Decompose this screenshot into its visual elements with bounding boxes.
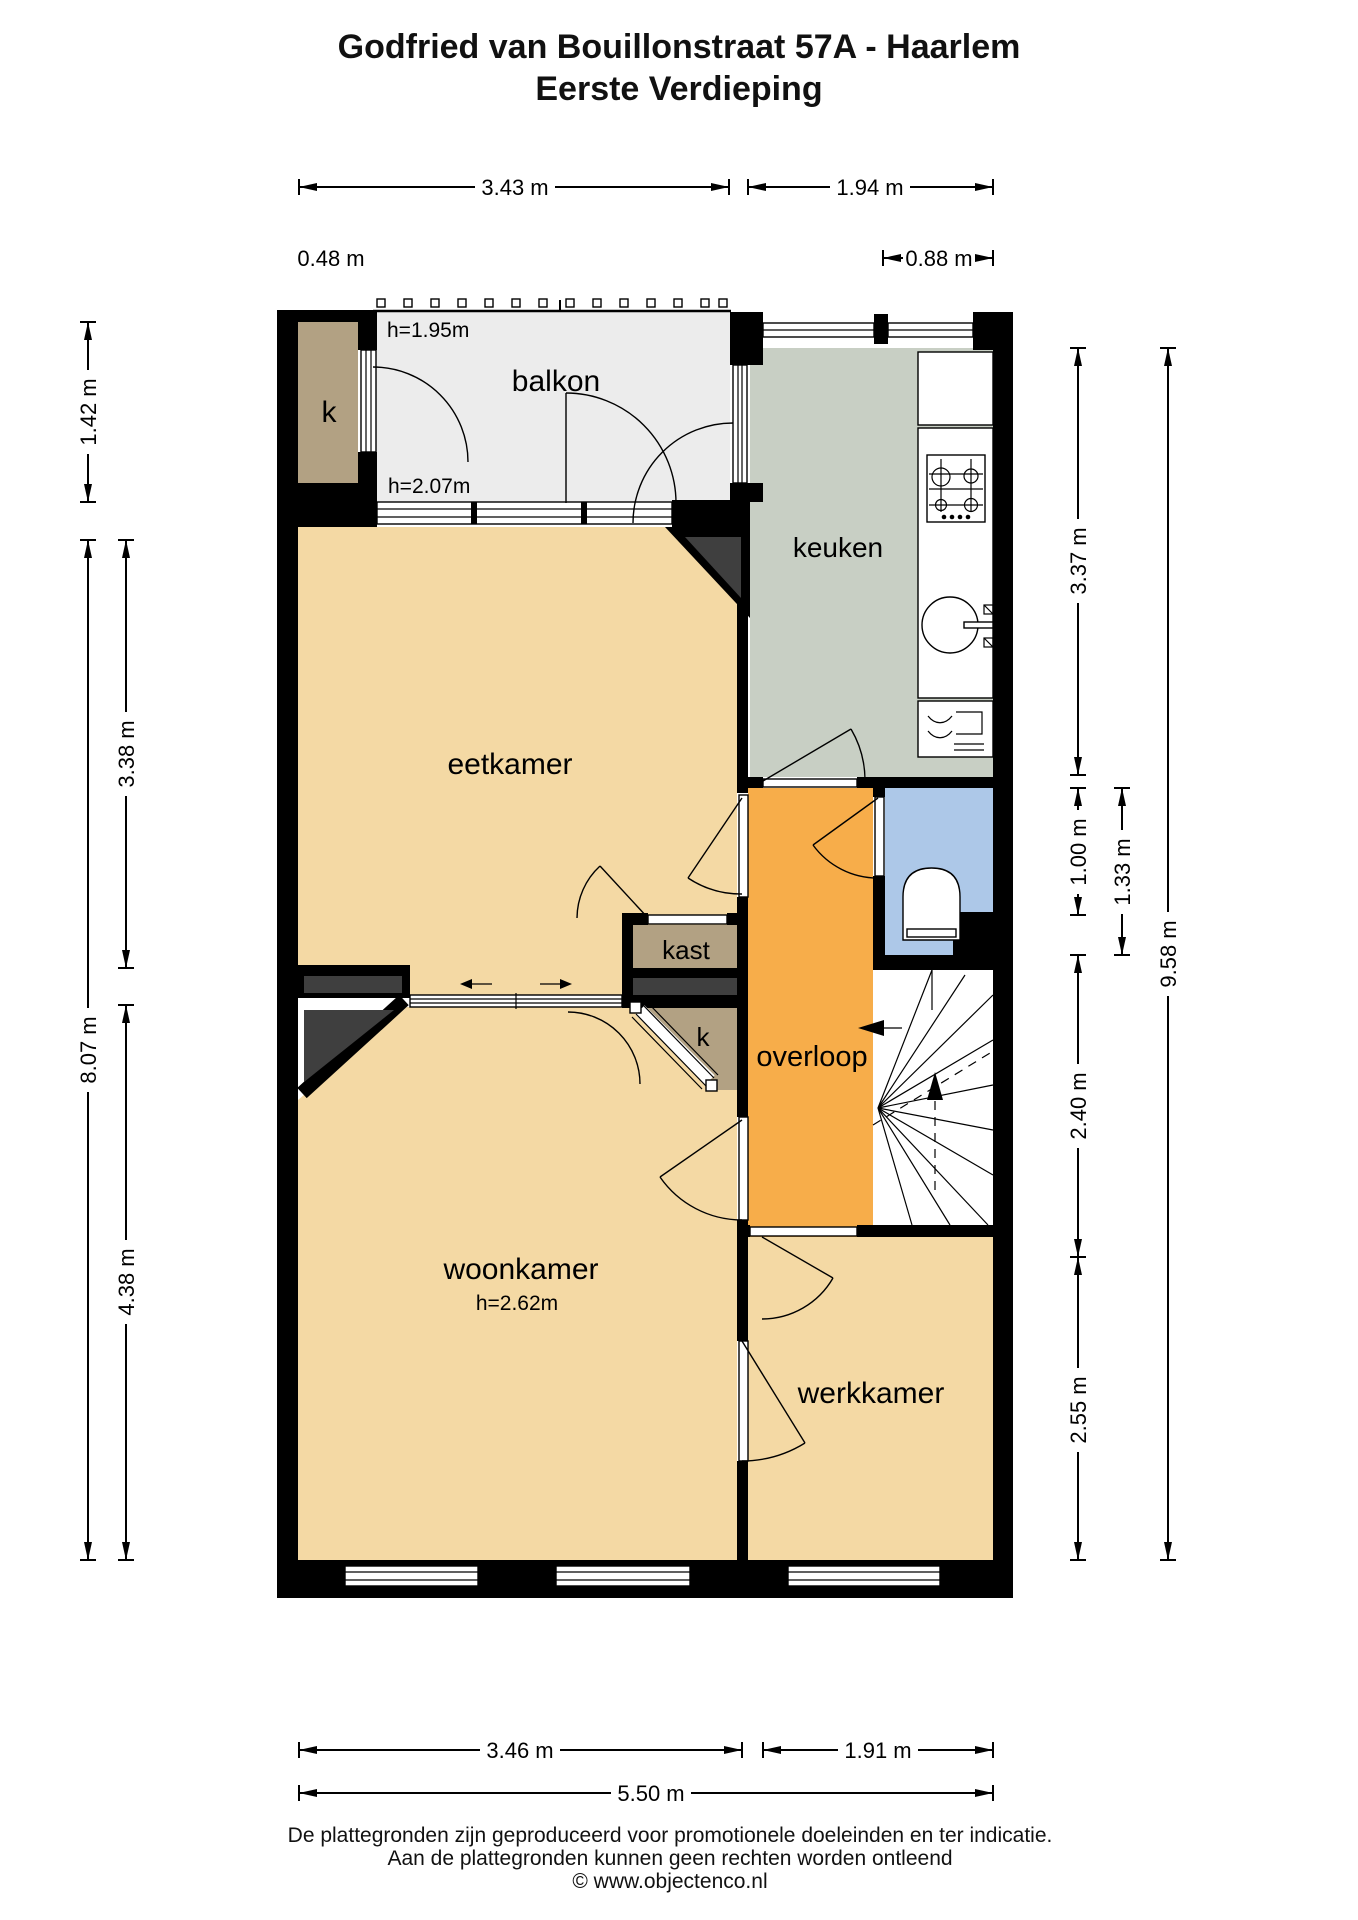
dim-left-total: 8.07 m bbox=[74, 540, 102, 1560]
footer-line-2: Aan de plattegronden kunnen geen rechten… bbox=[0, 1847, 1340, 1870]
werkkamer-label: werkkamer bbox=[797, 1377, 945, 1410]
svg-text:4.38 m: 4.38 m bbox=[114, 1248, 139, 1315]
svg-text:1.91 m: 1.91 m bbox=[844, 1738, 911, 1763]
balcony-railing bbox=[373, 299, 731, 311]
footer-line-3: © www.objectenco.nl bbox=[0, 1870, 1340, 1893]
dim-top-keuken: 1.94 m bbox=[748, 173, 993, 201]
svg-text:0.88 m: 0.88 m bbox=[905, 246, 972, 271]
eetkamer-label: eetkamer bbox=[447, 748, 572, 781]
svg-text:3.38 m: 3.38 m bbox=[114, 720, 139, 787]
floor-plan: balkon h=1.95m h=2.07m k keuken eetkamer… bbox=[0, 0, 1358, 1920]
svg-text:2.40 m: 2.40 m bbox=[1066, 1072, 1091, 1139]
balkon-height-bottom: h=2.07m bbox=[388, 475, 470, 498]
svg-text:5.50 m: 5.50 m bbox=[617, 1781, 684, 1806]
svg-text:3.46 m: 3.46 m bbox=[486, 1738, 553, 1763]
footer-disclaimer: De plattegronden zijn geproduceerd voor … bbox=[0, 1824, 1340, 1893]
dim-bottom-woonkamer: 3.46 m bbox=[299, 1736, 742, 1764]
svg-text:9.58 m: 9.58 m bbox=[1156, 920, 1181, 987]
dim-left-closet: 1.42 m bbox=[74, 322, 102, 502]
dim-right-total: 9.58 m bbox=[1154, 348, 1182, 1560]
dim-top-closet: 0.48 m bbox=[297, 246, 364, 271]
svg-text:3.43 m: 3.43 m bbox=[481, 175, 548, 200]
dim-right-overloop: 2.40 m bbox=[1064, 955, 1092, 1257]
svg-text:2.55 m: 2.55 m bbox=[1066, 1376, 1091, 1443]
dim-bottom-total: 5.50 m bbox=[299, 1779, 993, 1807]
kitchen-counter bbox=[918, 352, 993, 757]
dim-right-werkkamer: 2.55 m bbox=[1064, 1257, 1092, 1560]
stove-icon bbox=[927, 455, 985, 522]
dim-bottom-werkkamer: 1.91 m bbox=[763, 1736, 993, 1764]
woonkamer-label: woonkamer bbox=[442, 1253, 598, 1286]
woonkamer-height: h=2.62m bbox=[476, 1292, 558, 1315]
balkon-height-top: h=1.95m bbox=[387, 319, 469, 342]
balkon-label: balkon bbox=[512, 365, 600, 398]
dim-right-toilet-total: 1.33 m bbox=[1108, 788, 1136, 955]
dim-top-keuken-part: 0.88 m bbox=[883, 244, 993, 272]
dim-left-eetkamer: 3.38 m bbox=[112, 540, 140, 968]
dim-left-woonkamer: 4.38 m bbox=[112, 1005, 140, 1560]
kast-label: kast bbox=[662, 935, 710, 965]
dim-right-toilet: 1.00 m bbox=[1064, 788, 1092, 915]
floorplan-page: Godfried van Bouillonstraat 57A - Haarle… bbox=[0, 0, 1358, 1920]
keuken-label: keuken bbox=[793, 532, 883, 563]
dim-right-keuken: 3.37 m bbox=[1064, 348, 1092, 775]
svg-text:1.00 m: 1.00 m bbox=[1066, 818, 1091, 885]
room-overloop bbox=[748, 788, 873, 1237]
svg-text:1.42 m: 1.42 m bbox=[76, 378, 101, 445]
footer-line-1: De plattegronden zijn geproduceerd voor … bbox=[0, 1824, 1340, 1847]
svg-text:8.07 m: 8.07 m bbox=[76, 1016, 101, 1083]
dim-top-balkon: 3.43 m bbox=[299, 173, 729, 201]
svg-text:1.33 m: 1.33 m bbox=[1110, 838, 1135, 905]
closet-mid-label: k bbox=[697, 1022, 711, 1052]
toilet-icon bbox=[903, 868, 960, 940]
svg-text:1.94 m: 1.94 m bbox=[836, 175, 903, 200]
room-floors bbox=[298, 311, 993, 1560]
overloop-label: overloop bbox=[756, 1041, 867, 1073]
closet-top-label: k bbox=[322, 396, 338, 429]
svg-text:3.37 m: 3.37 m bbox=[1066, 527, 1091, 594]
